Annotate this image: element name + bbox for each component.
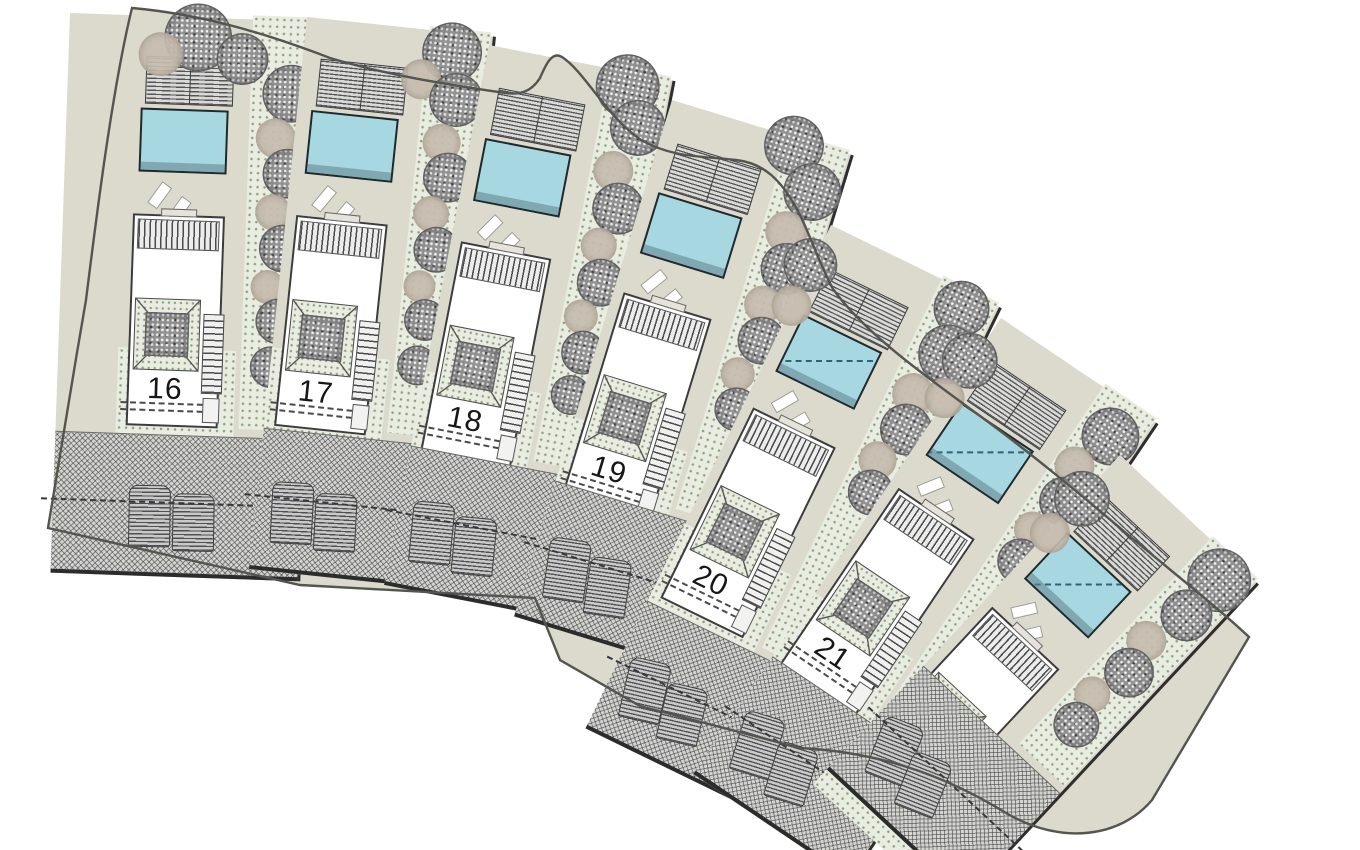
swimming-pool: [473, 138, 572, 218]
pool-section-dash: [775, 360, 882, 362]
courtyard: [285, 299, 358, 378]
deck-strip: [459, 247, 545, 292]
stair-landing: [202, 398, 220, 424]
entrance-notch: [161, 208, 197, 217]
car: [583, 556, 633, 620]
deck-strip: [618, 299, 705, 352]
stair-landing: [350, 404, 370, 431]
pergola-split-line: [1106, 527, 1138, 562]
setback-dashed-line: [120, 408, 212, 413]
courtyard: [436, 325, 515, 408]
pool-section-dash: [1025, 583, 1132, 585]
sun-lounger: [311, 185, 337, 213]
car: [408, 500, 456, 566]
pergola-split-line: [533, 97, 543, 142]
pergola-split-line: [849, 289, 870, 331]
swimming-pool: [139, 108, 229, 175]
sun-lounger: [147, 181, 172, 209]
entrance-notch: [324, 212, 361, 224]
car: [269, 481, 314, 545]
pool-section-dash: [927, 451, 1035, 453]
sun-lounger: [916, 476, 945, 497]
courtyard-tree-icon: [144, 312, 190, 358]
swimming-pool: [305, 110, 399, 183]
sun-lounger: [477, 214, 504, 241]
courtyard-tree-icon: [297, 314, 345, 362]
deck-strip: [298, 220, 383, 258]
sun-lounger: [640, 269, 668, 295]
staircase: [201, 314, 225, 395]
courtyard-tree-icon: [450, 341, 502, 393]
sun-lounger: [771, 390, 800, 413]
deck-strip: [137, 218, 220, 251]
pergola-roof: [316, 59, 409, 116]
courtyard: [133, 297, 201, 371]
site-plan-canvas: 16: [0, 0, 1360, 850]
pergola-split-line: [360, 64, 366, 110]
sun-lounger: [1010, 602, 1038, 620]
pergola-split-line: [706, 157, 721, 201]
pergola-split-line: [1004, 387, 1031, 426]
car: [128, 485, 171, 548]
